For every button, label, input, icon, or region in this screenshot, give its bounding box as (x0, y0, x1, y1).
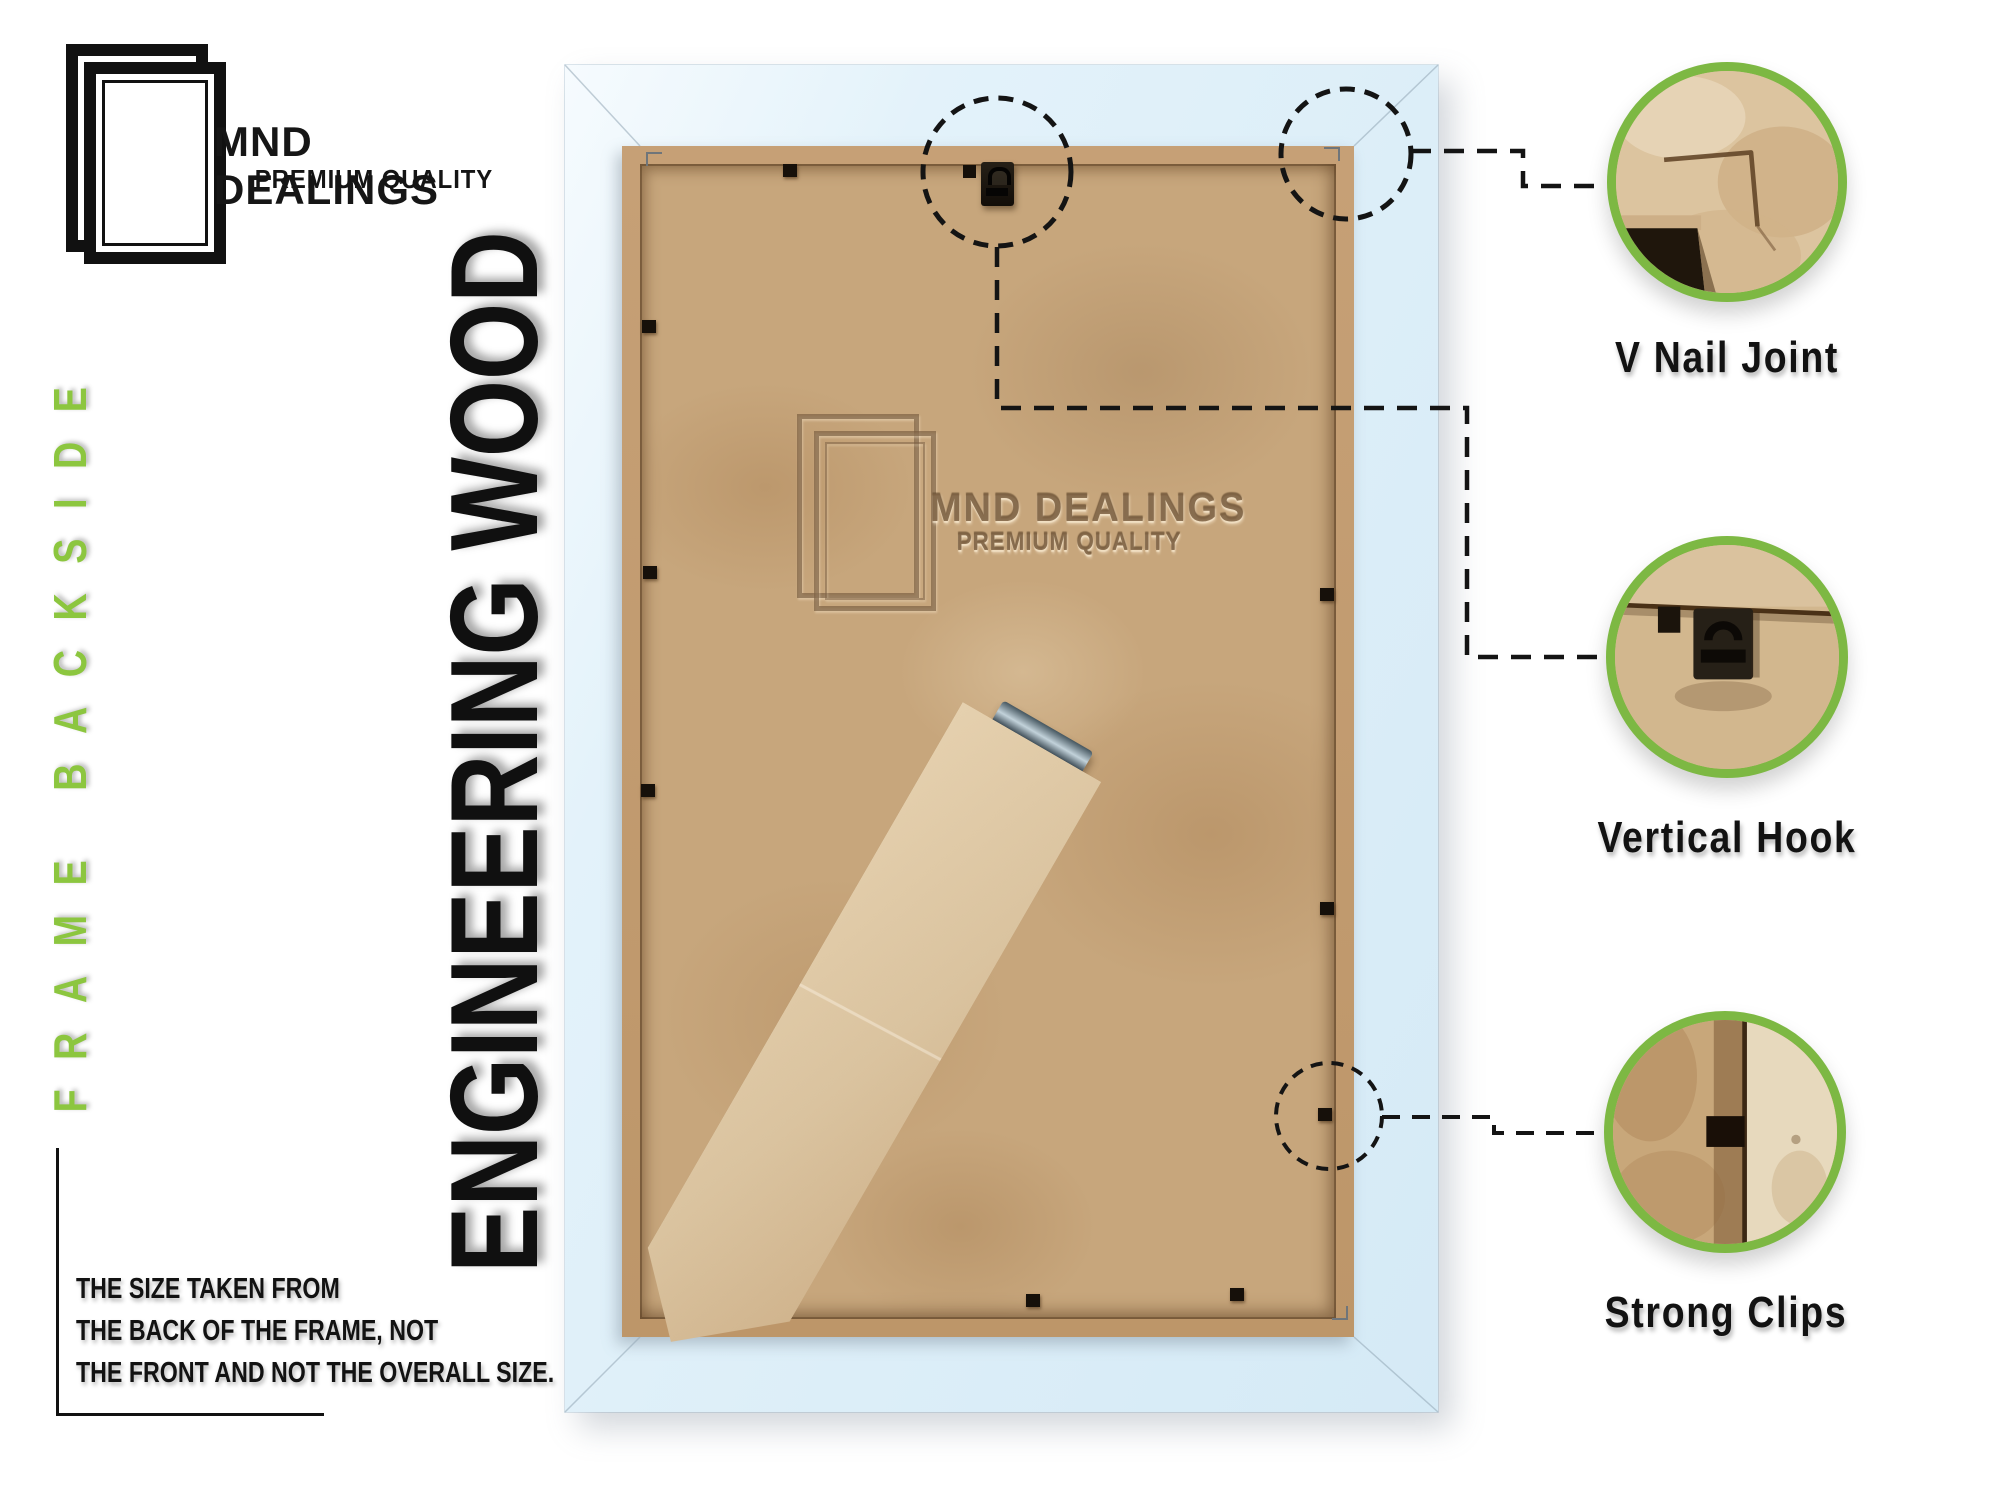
v-nail-mark (646, 152, 662, 166)
metal-clip (1320, 902, 1334, 915)
engineering-wood-label: ENGINEERING WOOD (424, 231, 566, 1273)
watermark-logo-icon-front (814, 431, 936, 611)
metal-clip (643, 566, 657, 579)
frame-backside-label: FRAME BACKSIDE (43, 358, 97, 1113)
clip-notch (963, 165, 976, 178)
watermark-brand-tagline: PREMIUM QUALITY (944, 528, 1194, 557)
v-nail-mark-circled (1324, 147, 1340, 161)
size-note-line-3: THE FRONT AND NOT THE OVERALL SIZE. (76, 1352, 554, 1394)
callout-label-strong-clips: Strong Clips (1605, 1288, 1848, 1338)
size-note-line-2: THE BACK OF THE FRAME, NOT (76, 1310, 554, 1352)
strong-clips-photo (1613, 1020, 1837, 1244)
note-rule-vertical (56, 1148, 59, 1416)
metal-clip (1230, 1288, 1244, 1301)
v-nail-joint-photo (1616, 71, 1838, 293)
callout-photo-strong-clips (1604, 1011, 1846, 1253)
size-note: THE SIZE TAKEN FROM THE BACK OF THE FRAM… (76, 1268, 554, 1394)
callout-connector-vnail (1411, 151, 1600, 186)
metal-clip (1026, 1294, 1040, 1307)
product-infographic: MND DEALINGS PREMIUM QUALITY FRAME BACKS… (0, 0, 2000, 1500)
metal-clip (1320, 588, 1334, 601)
brand-logo-frames-icon-front (84, 62, 226, 264)
callout-label-v-nail-joint: V Nail Joint (1615, 333, 1839, 383)
metal-clip (642, 320, 656, 333)
v-nail-mark (1332, 1306, 1348, 1320)
vertical-hook-photo (1615, 545, 1839, 769)
size-note-line-1: THE SIZE TAKEN FROM (76, 1268, 554, 1310)
metal-clip-circled (1318, 1108, 1332, 1121)
vertical-hook-hardware (981, 162, 1014, 206)
metal-clip (783, 164, 797, 177)
note-rule-horizontal (56, 1413, 324, 1416)
callout-label-vertical-hook: Vertical Hook (1597, 813, 1856, 863)
watermark-brand-name: MND DEALINGS (930, 486, 1246, 531)
metal-clip (641, 784, 655, 797)
callout-photo-vertical-hook (1606, 536, 1848, 778)
callout-photo-v-nail-joint (1607, 62, 1847, 302)
brand-tagline: PREMIUM QUALITY (227, 164, 521, 195)
